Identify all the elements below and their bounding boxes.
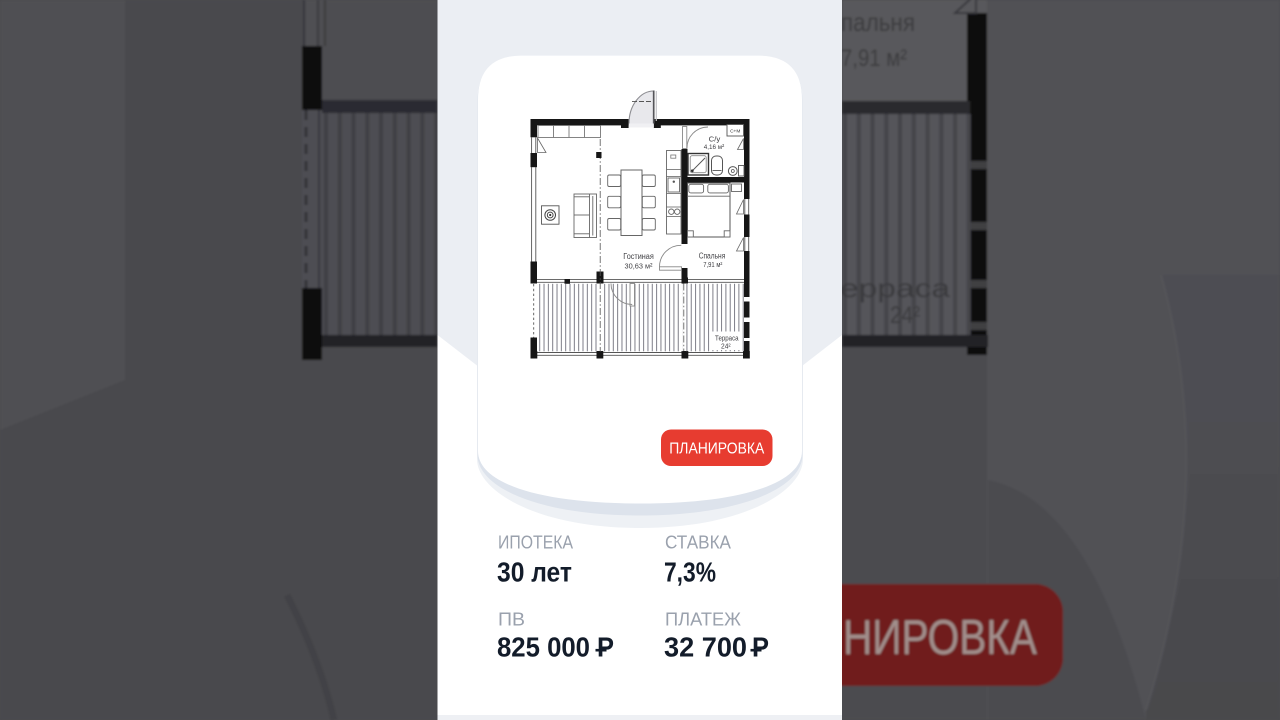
svg-text:ПВ: ПВ xyxy=(498,610,525,630)
svg-text:24²: 24² xyxy=(890,302,920,329)
svg-text:825 000: 825 000 xyxy=(497,632,590,663)
svg-text:НИРОВКА: НИРОВКА xyxy=(843,611,1037,665)
svg-text:пальня: пальня xyxy=(841,7,915,37)
svg-text:ПЛАНИРОВКА: ПЛАНИРОВКА xyxy=(669,441,765,458)
svg-text:Р: Р xyxy=(597,632,614,663)
svg-text:ерраса: ерраса xyxy=(840,273,951,303)
svg-text:С/у: С/у xyxy=(709,135,721,144)
svg-text:ПЛАТЕЖ: ПЛАТЕЖ xyxy=(665,610,741,630)
svg-text:7,3%: 7,3% xyxy=(664,557,716,588)
svg-text:4,16 м²: 4,16 м² xyxy=(704,144,725,151)
svg-text:Гостиная: Гостиная xyxy=(623,252,654,261)
svg-text:Р: Р xyxy=(752,632,769,663)
svg-text:Терраса: Терраса xyxy=(715,334,739,343)
svg-text:24²: 24² xyxy=(721,343,731,350)
svg-text:7,91 м²: 7,91 м² xyxy=(841,45,907,72)
svg-text:30 лет: 30 лет xyxy=(497,557,572,588)
svg-text:СТАВКА: СТАВКА xyxy=(665,533,731,553)
svg-text:30,63 м²: 30,63 м² xyxy=(625,261,653,270)
svg-text:7,91 м²: 7,91 м² xyxy=(703,260,722,269)
svg-text:32 700: 32 700 xyxy=(664,632,747,663)
svg-text:С+М: С+М xyxy=(730,128,740,134)
svg-text:ИПОТЕКА: ИПОТЕКА xyxy=(498,533,573,553)
